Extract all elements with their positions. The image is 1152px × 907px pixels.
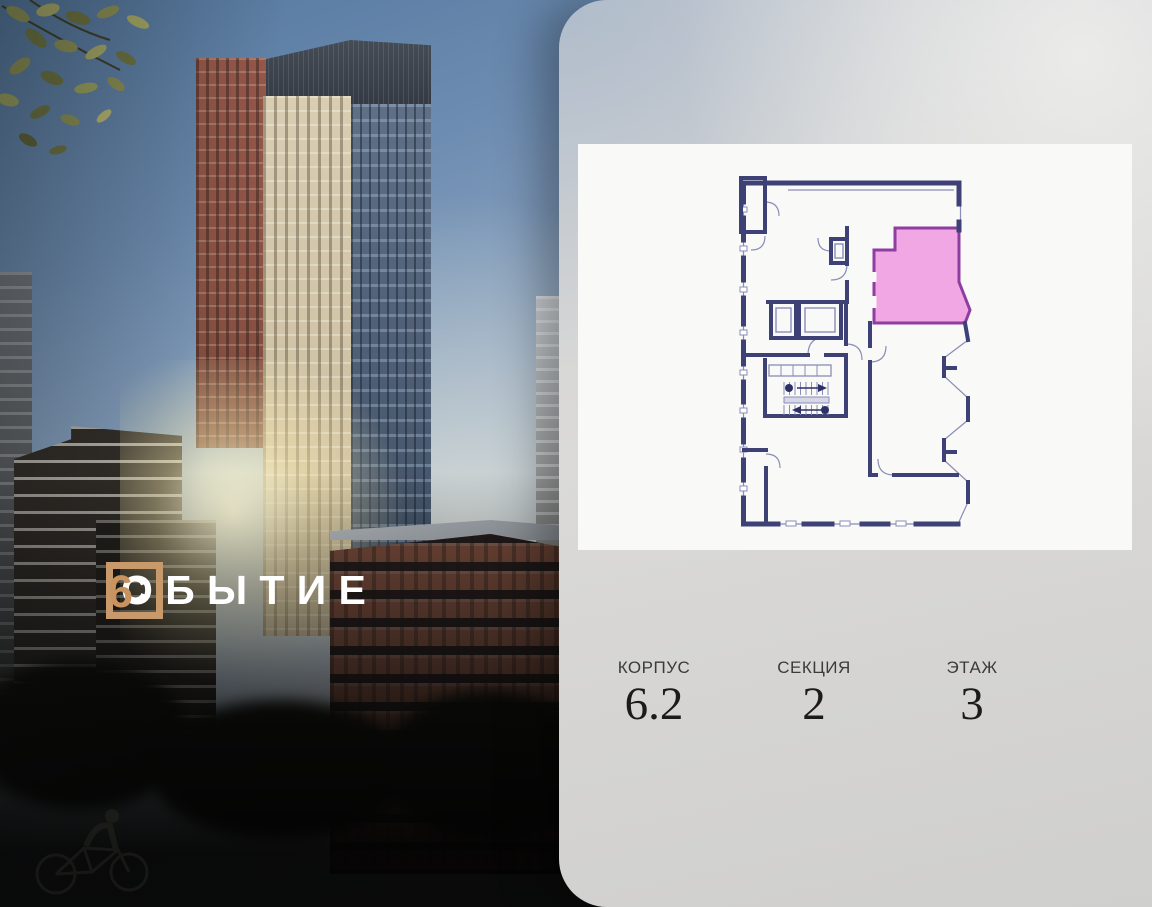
sektsiya-label: СЕКЦИЯ — [739, 658, 889, 678]
selected-unit-highlight[interactable] — [874, 228, 970, 323]
korpus-label: КОРПУС — [589, 658, 719, 678]
unit-door-opening — [872, 296, 877, 308]
floorplan-svg[interactable] — [578, 144, 1132, 550]
selected-unit[interactable] — [872, 228, 971, 323]
screenshot-stage: С ОБЫТИЕ 6 — [0, 0, 1152, 907]
floor-info-card: КОРПУС 6.2 СЕКЦИЯ 2 ЭТАЖ 3 — [559, 0, 1152, 907]
etazh-label: ЭТАЖ — [897, 658, 1047, 678]
cyclist-silhouette — [26, 800, 166, 900]
info-korpus: КОРПУС 6.2 — [589, 658, 719, 728]
etazh: ЭТАЖ 3 — [897, 658, 1047, 728]
info-sektsiya: СЕКЦИЯ 2 — [739, 658, 889, 728]
etazh-value: 3 — [897, 681, 1047, 728]
korpus-value: 6.2 — [589, 681, 719, 728]
logo-wordmark: ОБЫТИЕ — [121, 570, 378, 611]
sektsiya-value: 2 — [739, 681, 889, 728]
floorplan-panel — [578, 144, 1132, 550]
apartment-location-info: КОРПУС 6.2 СЕКЦИЯ 2 ЭТАЖ 3 — [559, 658, 1152, 728]
stairs — [769, 365, 831, 415]
logo-number: 6 — [108, 569, 133, 614]
unit-door-opening — [872, 272, 877, 282]
